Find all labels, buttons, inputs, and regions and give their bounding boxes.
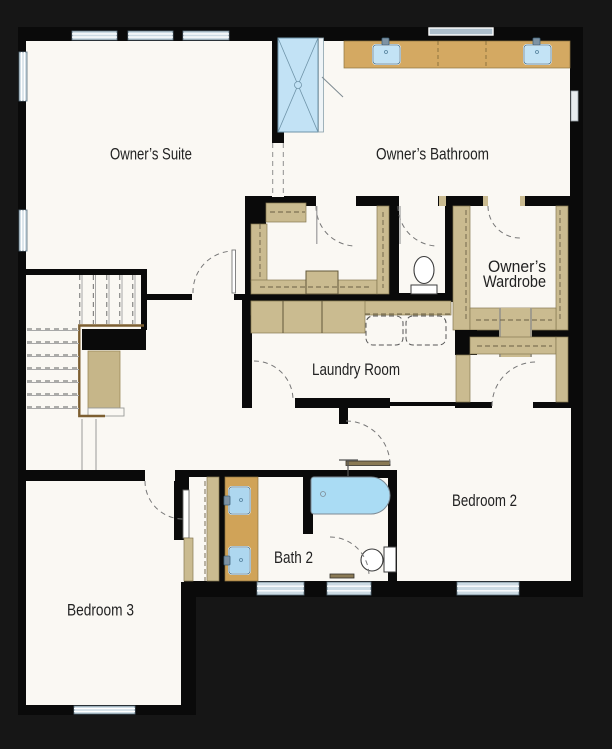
svg-text:Wardrobe: Wardrobe bbox=[483, 272, 546, 291]
svg-text:Owner’s Bathroom: Owner’s Bathroom bbox=[376, 145, 489, 164]
svg-text:Owner’s Suite: Owner’s Suite bbox=[110, 145, 192, 164]
svg-text:Laundry Room: Laundry Room bbox=[312, 360, 400, 379]
svg-text:Bath 2: Bath 2 bbox=[274, 548, 313, 567]
svg-text:Bedroom 3: Bedroom 3 bbox=[67, 601, 134, 620]
svg-text:Bedroom 2: Bedroom 2 bbox=[452, 491, 517, 510]
